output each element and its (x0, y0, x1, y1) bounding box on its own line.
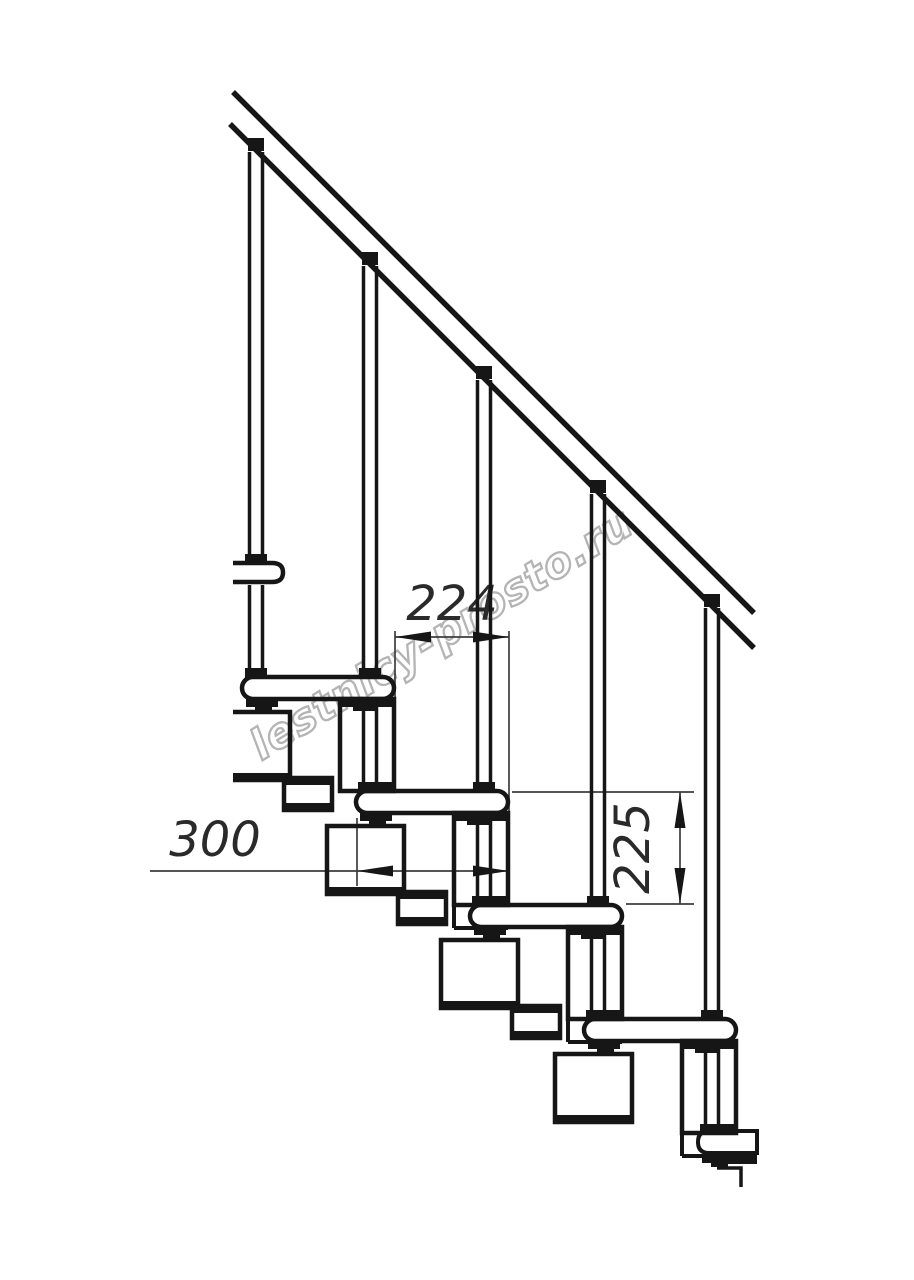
tread-foot-step (483, 934, 500, 939)
baluster-collar (587, 896, 609, 906)
staircase-drawing-page: lestnicy-prosto.ru 224 300 225 (0, 0, 914, 1280)
tread-foot (568, 927, 620, 935)
module-sleeve-bottom (233, 773, 290, 780)
watermark-text: lestnicy-prosto.ru (241, 498, 642, 770)
module-riser-bottom (472, 896, 508, 904)
tread-foot (340, 699, 392, 707)
dimension-label-step-run: 224 (406, 576, 498, 632)
rail-connector (362, 252, 378, 265)
module-riser-3-fill (568, 927, 622, 1019)
tread-foot-step (581, 934, 603, 939)
tread-foot (454, 813, 506, 821)
module-connector-top (398, 892, 446, 899)
module-connector-top (512, 1006, 560, 1013)
module-sleeve-3-fill (441, 940, 518, 1008)
handrail-upper-line (233, 92, 754, 613)
upper-floor-tread-fill (233, 563, 283, 582)
baluster-collar (359, 668, 381, 678)
module-sleeve-bottom (327, 887, 404, 894)
baluster-collar (245, 668, 267, 678)
module-sleeve-bottom (555, 1115, 632, 1122)
dimension-label-step-rise: 225 (605, 802, 661, 894)
module-sleeve-4-fill (555, 1054, 632, 1122)
rail-connector (704, 594, 720, 607)
tread-foot (360, 813, 392, 821)
module-riser-bottom (700, 1124, 736, 1132)
rail-connector (248, 138, 264, 151)
dimension-arrow-up (675, 792, 686, 828)
watermark-layer: lestnicy-prosto.ru (241, 498, 642, 770)
tread-foot-step (369, 820, 386, 825)
module-riser-bottom (358, 782, 394, 790)
module-riser-4-fill (682, 1041, 736, 1133)
tread-foot-step (353, 706, 375, 711)
module-connector-bottom (284, 803, 332, 810)
dimension-layer: 224 300 225 (150, 576, 694, 904)
tread-2-fill (356, 791, 508, 813)
module-connector-bottom (512, 1031, 560, 1038)
tread-foot (588, 1041, 620, 1049)
structure-fills (233, 563, 757, 1153)
dimension-arrow-down (675, 868, 686, 904)
staircase-side-view-drawing: lestnicy-prosto.ru 224 300 225 (0, 0, 914, 1280)
drawing-cut-edge (717, 1168, 741, 1187)
baluster-collar (701, 1010, 723, 1020)
tread-foot-step (695, 1048, 717, 1053)
rail-connector (590, 480, 606, 493)
baluster-collar (473, 782, 495, 792)
tread-foot (682, 1041, 734, 1049)
module-sleeve-bottom (441, 1001, 518, 1008)
module-connector-bottom (398, 917, 446, 924)
black-details (233, 138, 757, 1167)
tread-foot (246, 699, 278, 707)
tread-foot (474, 927, 506, 935)
tread-foot-step (467, 820, 489, 825)
tread-foot-step (597, 1048, 614, 1053)
rail-connector (476, 366, 492, 379)
module-sleeve-2-fill (327, 826, 404, 894)
baluster-collar (245, 554, 267, 564)
module-connector-top (284, 778, 332, 785)
tread-4-fill (584, 1019, 736, 1041)
tread-foot-step (255, 706, 272, 711)
tread-3-fill (470, 905, 622, 927)
dimension-label-tread-depth: 300 (169, 812, 261, 868)
module-riser-2-fill (454, 813, 508, 905)
tread-foot (720, 1153, 757, 1164)
module-riser-bottom (586, 1010, 622, 1018)
